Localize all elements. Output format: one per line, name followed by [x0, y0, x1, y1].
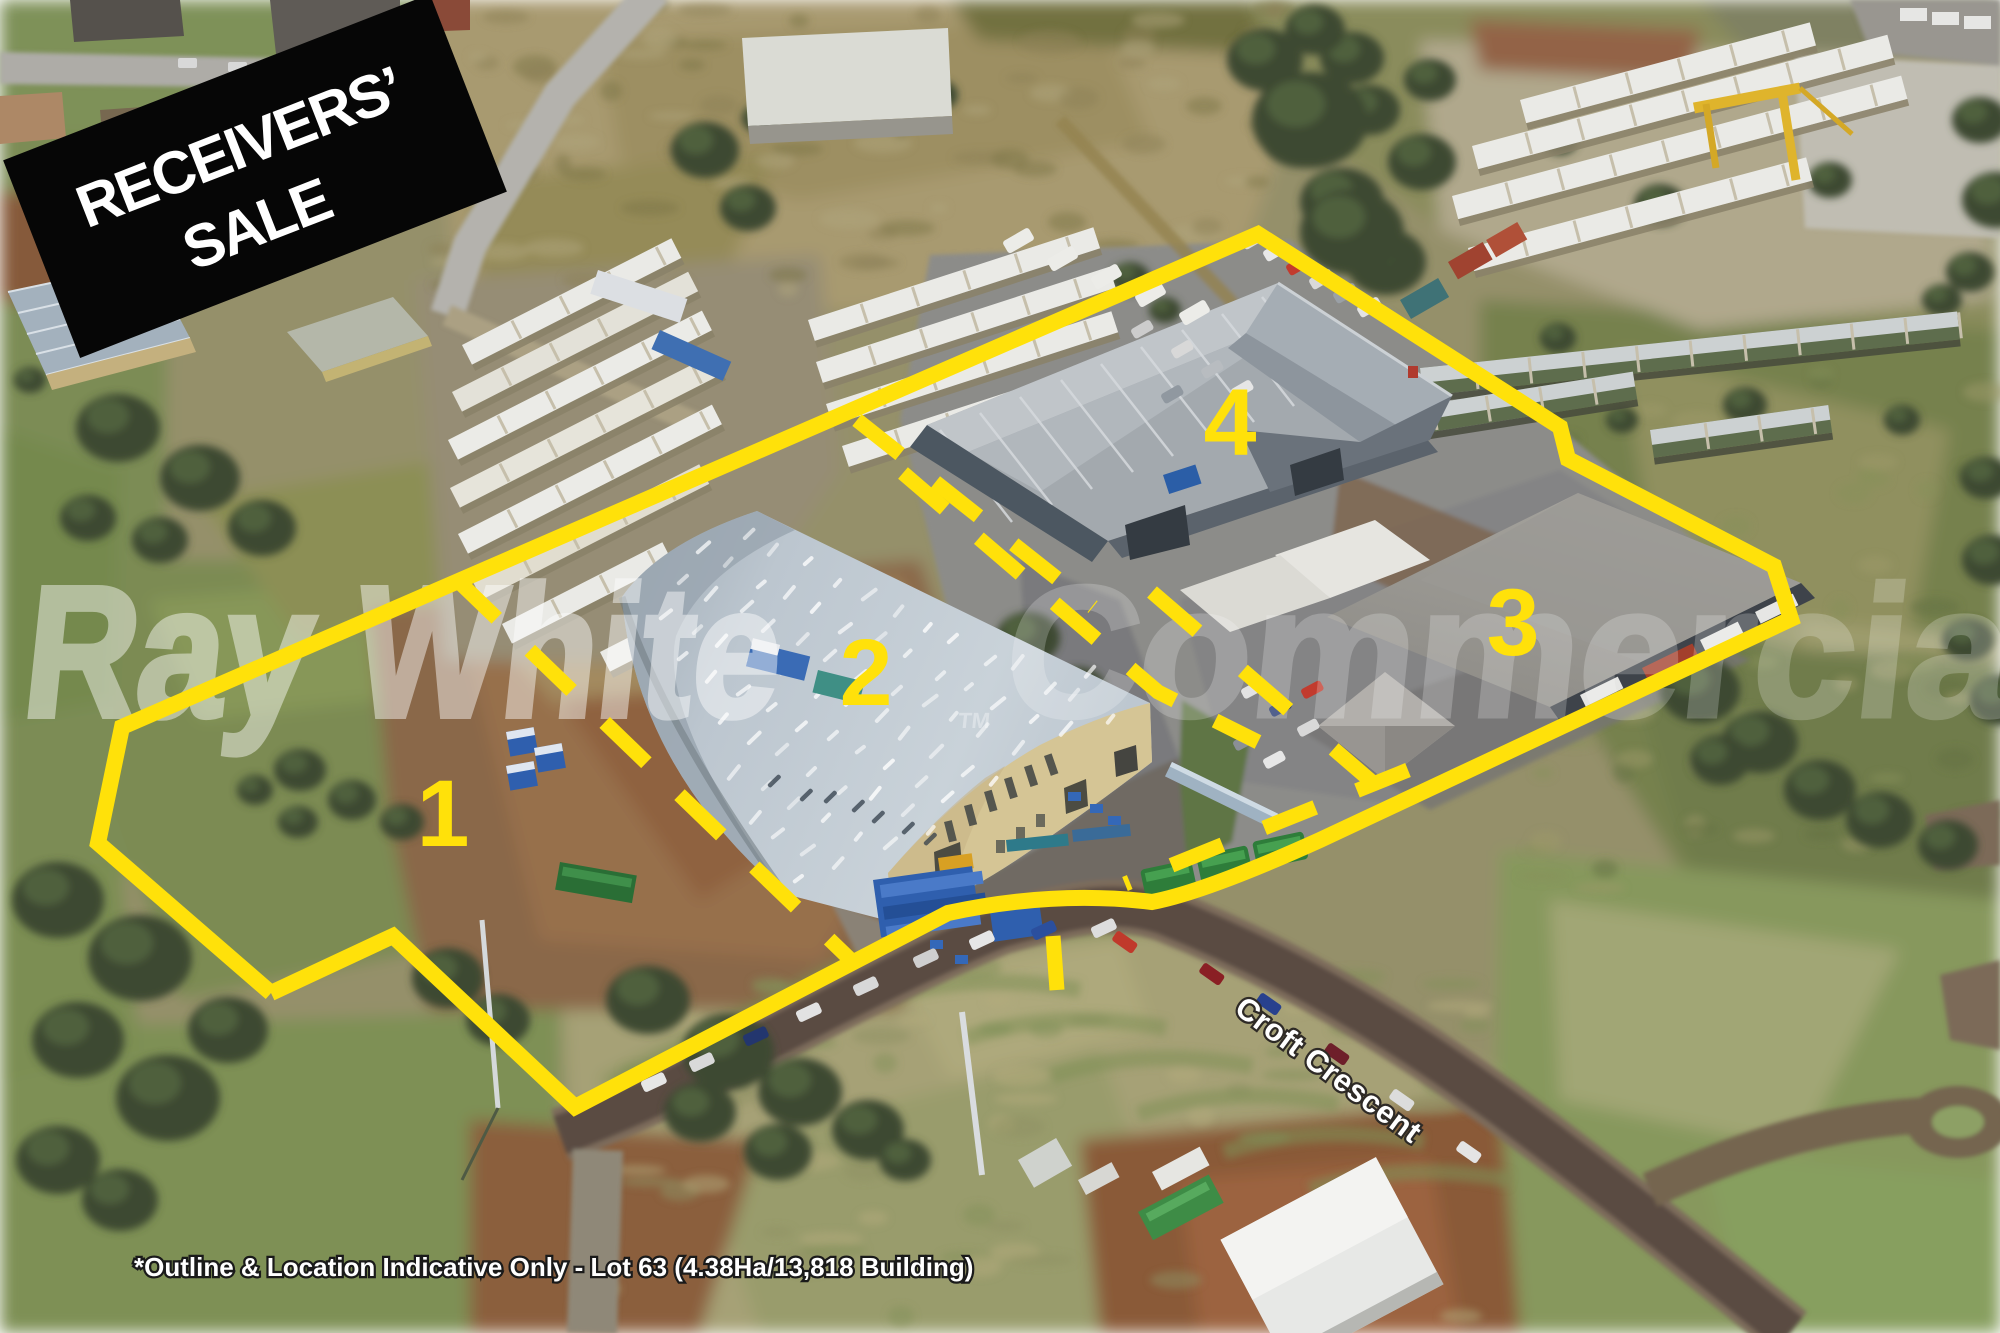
- svg-text:*Outline & Location Indicative: *Outline & Location Indicative Only - Lo…: [134, 1252, 973, 1282]
- svg-text:2: 2: [840, 620, 893, 726]
- svg-text:1: 1: [417, 761, 470, 867]
- svg-text:TM: TM: [957, 708, 991, 733]
- svg-text:3: 3: [1487, 570, 1540, 676]
- svg-text:4: 4: [1204, 370, 1257, 476]
